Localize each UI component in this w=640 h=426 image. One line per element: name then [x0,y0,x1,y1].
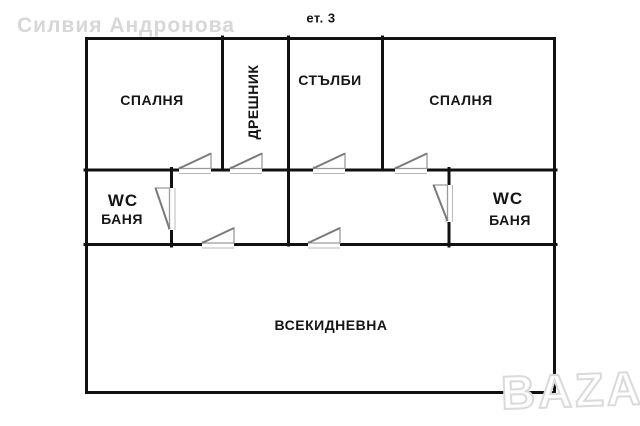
room-label-bedroom-right: СПАЛНЯ [429,92,492,108]
door-swing-icon-corridor-right [308,228,340,243]
floor-plan-drawing [0,0,640,426]
room-label-stairs: СТЪЛБИ [298,72,361,88]
door-swing-icon-closet [230,154,262,169]
room-label-wc-right: WC [493,189,523,209]
watermark-logo-text: BAZAR [500,359,640,420]
room-label-closet: ДРЕШНИК [245,65,261,140]
door-swing-icon-bedroom-left [179,154,211,169]
room-label-bedroom-left: СПАЛНЯ [120,92,183,108]
door-swing-icon-stairs [313,154,345,169]
door-swing-icon-wc-left [156,188,170,229]
room-label-bath-left: БАНЯ [101,211,143,227]
floor-label: ет. 3 [306,11,335,26]
room-label-living-room: ВСЕКИДНЕВНА [275,317,388,333]
room-label-wc-left: WC [108,191,138,211]
room-label-bath-right: БАНЯ [489,212,531,228]
door-openings [168,166,454,249]
floor-plan-image: Силвия Андронова [0,0,640,426]
door-swing-icon-corridor-left [202,228,234,243]
door-swing-icon-bedroom-right [395,154,427,169]
door-swing-icon-wc-right [434,185,448,221]
